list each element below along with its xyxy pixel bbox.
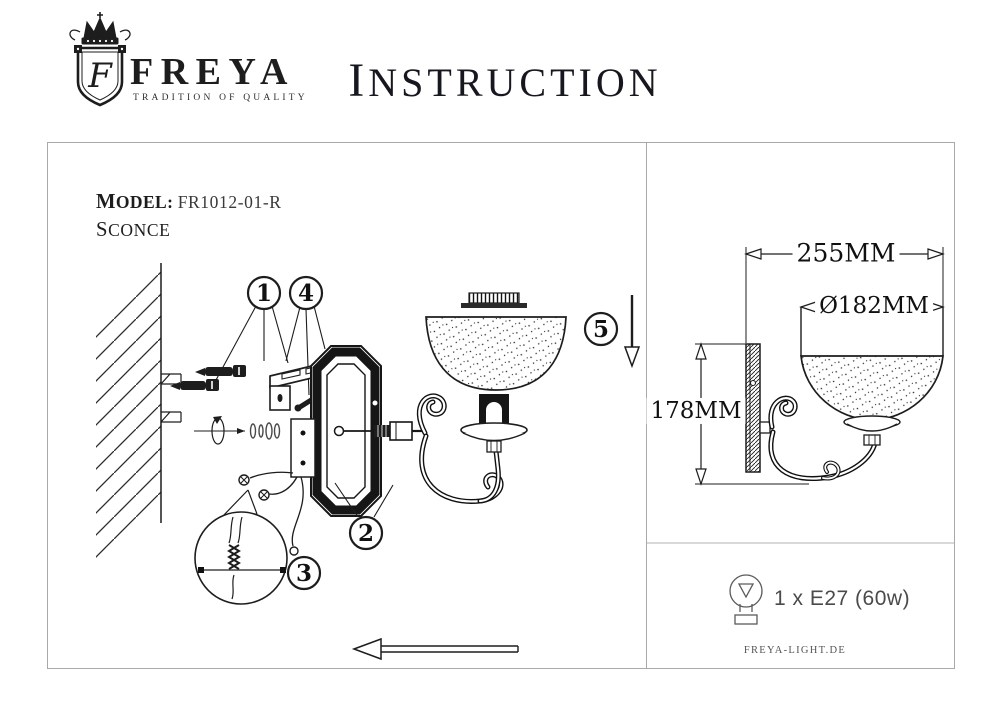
dimension-diameter-label: Ø182MM — [815, 293, 933, 319]
dimensions-panel: 255MM Ø182MM 178MM 1 x E27 (60w) FREYA-L… — [646, 142, 955, 669]
callout-5-label: 5 — [593, 316, 609, 343]
dimension-width-label: 255MM — [793, 238, 900, 267]
lamp-socket — [461, 394, 527, 452]
instruction-sheet: F FREYA TRADITION OF QUALITY INSTRUCTION… — [0, 0, 1000, 706]
brand-tagline: TRADITION OF QUALITY — [133, 93, 308, 103]
callout-1-badge: 1 — [216, 277, 288, 380]
callout-1-label: 1 — [256, 280, 272, 307]
wall-hatch — [96, 263, 181, 559]
backplate-side — [746, 344, 760, 472]
crown-icon — [70, 12, 130, 44]
direction-arrow — [354, 639, 518, 659]
page-title: INSTRUCTION — [320, 54, 690, 108]
dimension-height-label: 178MM — [646, 398, 745, 424]
wiring-detail-circle — [195, 490, 287, 604]
assembly-diagram: 1 4 — [48, 143, 647, 668]
callout-5-badge: 5 — [585, 295, 639, 366]
brand-name: FREYA — [130, 51, 295, 93]
freya-shield-icon: F — [74, 45, 126, 105]
backplate — [311, 346, 423, 516]
brand-monogram: F — [87, 56, 113, 96]
callout-3-badge: 3 — [288, 557, 320, 589]
glass-shade — [426, 293, 566, 390]
callout-4-label: 4 — [298, 280, 314, 307]
website-label: FREYA-LIGHT.DE — [744, 645, 846, 656]
callout-3-label: 3 — [296, 560, 312, 587]
assembly-panel: MODEL: FR1012-01-R SCONCE — [47, 142, 647, 669]
brand-logo: F FREYA TRADITION OF QUALITY — [28, 10, 308, 114]
callout-2-label: 2 — [358, 520, 374, 547]
rotation-icon — [194, 416, 245, 444]
glass-side — [801, 307, 943, 445]
bulb-spec: 1 x E27 (60w) — [774, 587, 910, 611]
washers — [251, 423, 280, 439]
bulb-icon — [730, 575, 762, 624]
